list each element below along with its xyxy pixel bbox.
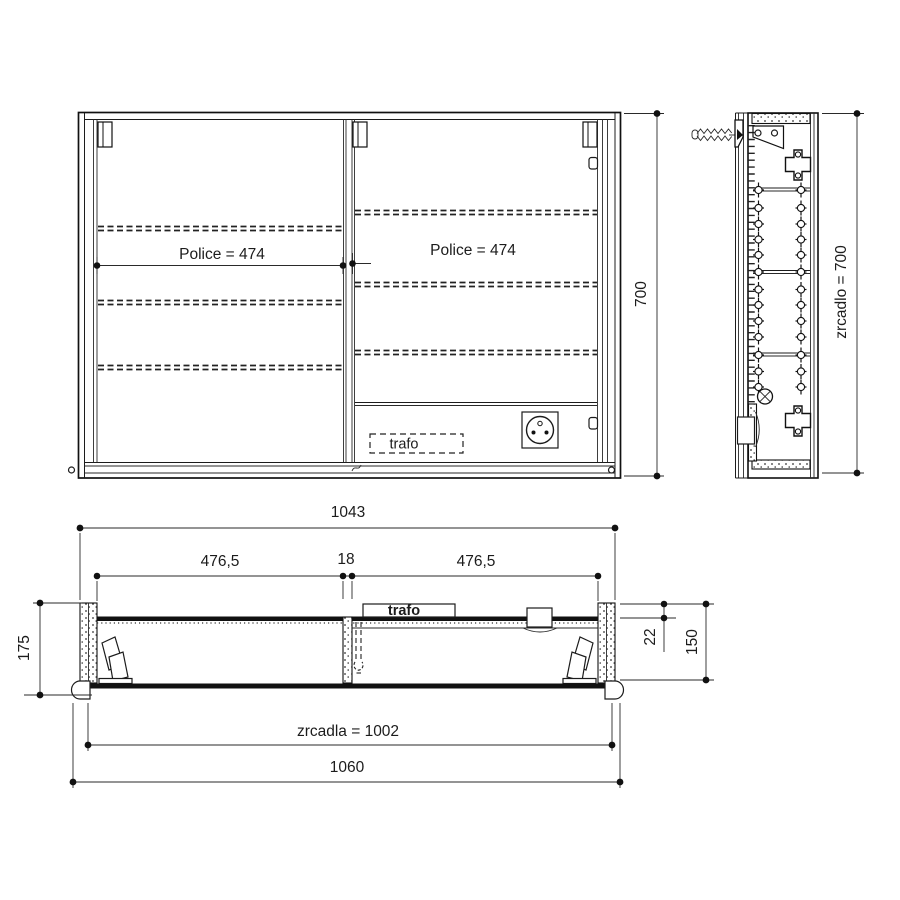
police-left-text: Police = 474 bbox=[179, 246, 265, 263]
divider-section bbox=[343, 617, 352, 683]
total-width-dimension: 1060 bbox=[70, 703, 624, 788]
connector-box bbox=[527, 608, 552, 627]
door-end-right bbox=[605, 681, 624, 699]
mirror-width-dimension: zrcadla = 1002 bbox=[85, 703, 616, 751]
height-dim-text: 700 bbox=[633, 281, 650, 307]
screw-hole-icon bbox=[772, 130, 778, 136]
depth-dim-text: 150 bbox=[684, 629, 701, 655]
height-dimension-700: 700 bbox=[624, 110, 664, 479]
side-view: zrcadlo = 700 bbox=[692, 110, 864, 478]
cable-dashed bbox=[354, 622, 363, 673]
handle-bracket bbox=[738, 417, 755, 444]
hanging-bracket-icon bbox=[583, 122, 597, 147]
compartment-dimensions: 476,5 18 476,5 bbox=[94, 551, 602, 601]
hinge-left-icon bbox=[99, 637, 132, 684]
screw-hole-icon bbox=[755, 130, 761, 136]
hinge-right-icon bbox=[563, 637, 596, 684]
hanging-hook-icon bbox=[735, 120, 743, 147]
front-offset-text: 22 bbox=[642, 628, 659, 645]
connector-arc bbox=[523, 628, 557, 632]
mirror-width-text: zrcadla = 1002 bbox=[297, 723, 399, 740]
right-shelf-dim-text: 476,5 bbox=[457, 553, 496, 570]
hinge-icon bbox=[589, 418, 598, 430]
mirror-height-dimension: zrcadlo = 700 bbox=[822, 110, 864, 476]
inner-width-text: 1043 bbox=[331, 504, 365, 521]
mirror-door-band bbox=[90, 684, 605, 689]
hanging-bracket-icon bbox=[353, 122, 367, 147]
total-width-text: 1060 bbox=[330, 759, 365, 776]
plan-trafo-label: trafo bbox=[388, 603, 420, 619]
adjuster-screw-icon bbox=[609, 467, 615, 473]
hinge-icon bbox=[589, 158, 598, 170]
power-outlet-icon bbox=[522, 412, 558, 448]
wall-plug-screw-icon bbox=[692, 129, 738, 141]
bottom-panel-section bbox=[752, 460, 810, 469]
hanging-bracket-icon bbox=[98, 122, 112, 147]
total-depth-text: 175 bbox=[16, 635, 33, 661]
front-view: trafo Police = 474 Police = 474 bbox=[69, 110, 665, 479]
lamp-symbol-icon bbox=[758, 389, 773, 404]
top-panel-section bbox=[752, 114, 810, 124]
drawing-canvas: trafo Police = 474 Police = 474 bbox=[0, 0, 900, 900]
door-end-left bbox=[72, 681, 91, 699]
adjuster-screw-icon bbox=[69, 467, 75, 473]
depth-dimension: 150 bbox=[620, 601, 714, 684]
left-shelf-dim-text: 476,5 bbox=[201, 553, 240, 570]
plan-view: 1043 476,5 18 476,5 trafo bbox=[16, 504, 714, 788]
trafo-label: trafo bbox=[389, 437, 418, 453]
divider-dim-text: 18 bbox=[337, 551, 354, 568]
technical-drawing-page: trafo Police = 474 Police = 474 bbox=[0, 0, 900, 900]
mirror-height-text: zrcadlo = 700 bbox=[833, 245, 850, 339]
police-right-text: Police = 474 bbox=[430, 242, 516, 259]
